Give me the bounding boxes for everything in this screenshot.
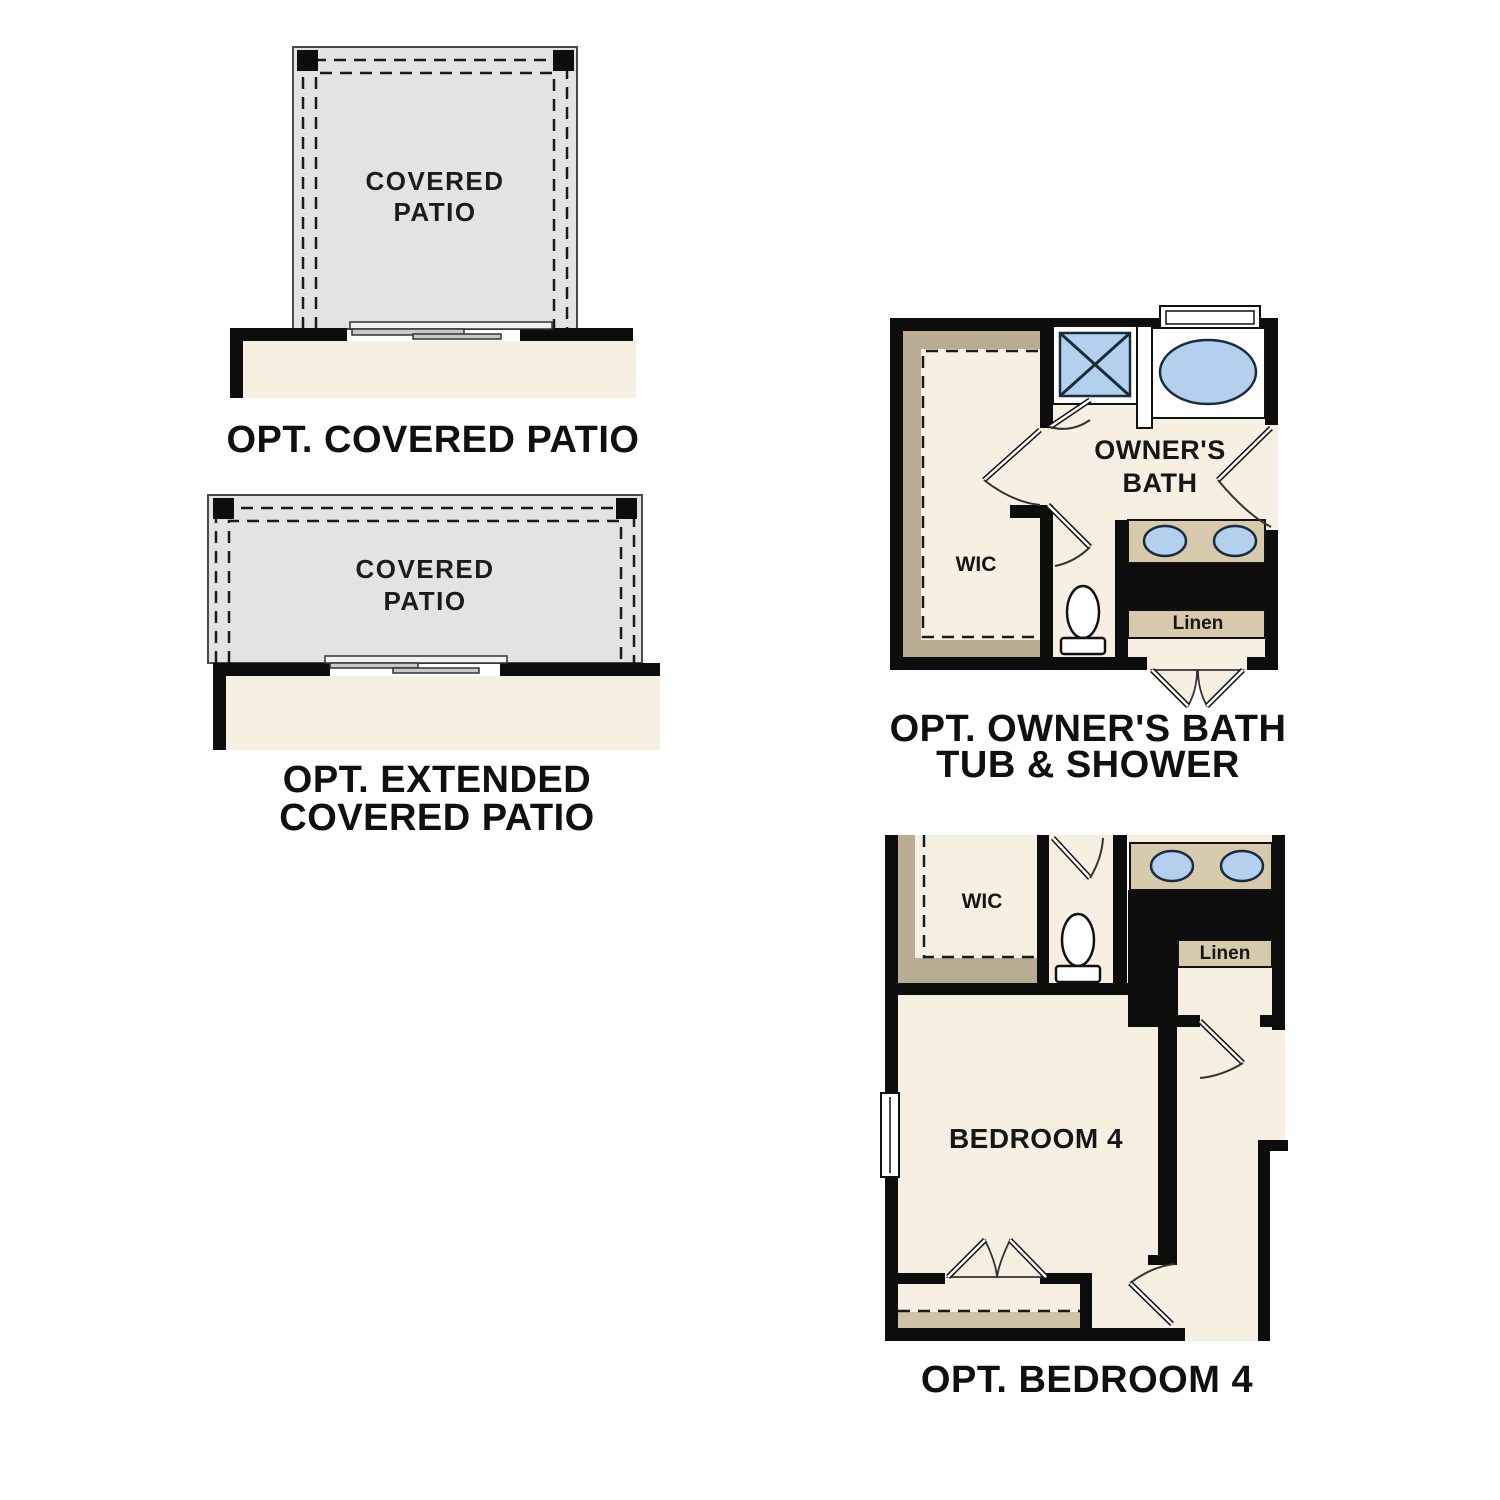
door-opening	[1147, 657, 1247, 670]
window	[881, 1093, 899, 1177]
toilet-tank	[1061, 638, 1105, 654]
floor-plan-options-sheet: COVERED PATIO OPT. COVERED PATIO COVERED…	[0, 0, 1500, 1500]
shower-fixture	[1053, 326, 1137, 404]
window-frame	[1160, 306, 1260, 330]
sliding-door-panel	[413, 334, 501, 339]
room-label-wic: WIC	[962, 890, 1003, 913]
diagram-covered-patio: COVERED PATIO OPT. COVERED PATIO	[227, 47, 640, 461]
wic-floor	[921, 349, 1040, 640]
wic-shelving-band	[898, 958, 1037, 983]
linen-label: Linen	[1173, 613, 1224, 634]
room-label-covered-patio-line2: PATIO	[383, 586, 466, 616]
room-label-covered-patio-line1: COVERED	[365, 166, 504, 196]
room-label-covered-patio-line1: COVERED	[355, 554, 494, 584]
floor-plan-canvas: COVERED PATIO OPT. COVERED PATIO COVERED…	[0, 0, 1500, 1500]
sink-basin	[1144, 526, 1186, 556]
sliding-door-panel	[393, 668, 479, 673]
tub-basin	[1160, 340, 1256, 404]
diagram-caption-line2: TUB & SHOWER	[936, 744, 1240, 786]
toilet-bowl	[1062, 914, 1094, 966]
diagram-bedroom4: WIC Linen BEDROOM 4 OPT. BEDROOM 4	[881, 835, 1288, 1401]
door-opening	[1265, 425, 1278, 530]
interior-floor	[233, 341, 636, 398]
sink-basin	[1221, 851, 1263, 881]
room-label-owners-bath-line1: OWNER'S	[1094, 435, 1225, 465]
room-label-covered-patio-line2: PATIO	[393, 197, 476, 227]
vanity-back-strip	[1128, 835, 1272, 843]
diagram-caption-line2: COVERED PATIO	[279, 797, 594, 839]
room-label-wic: WIC	[956, 553, 997, 576]
double-door-swing	[1152, 670, 1243, 706]
diagram-owners-bath: OWNER'S BATH WIC Linen OPT. OWNER'S BATH…	[890, 306, 1287, 786]
sliding-door-frame	[325, 656, 507, 663]
diagram-caption: OPT. COVERED PATIO	[227, 419, 640, 461]
sliding-glass-door	[325, 656, 507, 673]
linen-label: Linen	[1200, 943, 1251, 964]
sink-basin	[1214, 526, 1256, 556]
sink-basin	[1151, 851, 1193, 881]
toilet-tank	[1056, 966, 1100, 982]
diagram-caption-line1: OPT. EXTENDED	[283, 759, 591, 801]
wall-pillar	[1137, 326, 1152, 428]
window	[1160, 306, 1260, 330]
room-label-owners-bath-line2: BATH	[1123, 468, 1198, 498]
bathtub-fixture	[1152, 328, 1265, 418]
diagram-extended-covered-patio: COVERED PATIO OPT. EXTENDED COVERED PATI…	[208, 495, 660, 839]
diagram-caption: OPT. BEDROOM 4	[921, 1359, 1253, 1401]
closet-shelf	[898, 1312, 1080, 1328]
room-label-bedroom4: BEDROOM 4	[949, 1123, 1123, 1154]
toilet-bowl	[1067, 586, 1099, 638]
interior-floor	[216, 676, 660, 750]
sliding-door-frame	[350, 322, 552, 329]
